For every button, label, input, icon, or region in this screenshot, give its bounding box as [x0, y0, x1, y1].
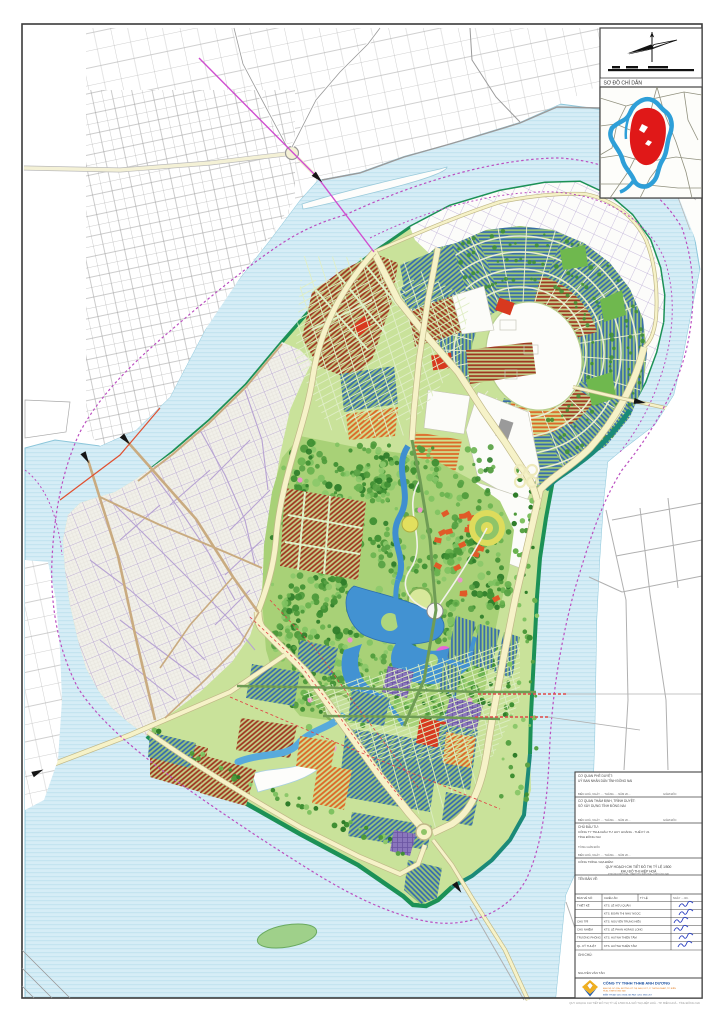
svg-text:QUY HOẠCH CHI TIẾT ĐÔ THỊ TỶ L: QUY HOẠCH CHI TIẾT ĐÔ THỊ TỶ LỆ 1/500 KH… — [569, 1000, 700, 1005]
svg-text:(PHƯỜNG HIỆP HOÀ - THÀNH PHỐ B: (PHƯỜNG HIỆP HOÀ - THÀNH PHỐ BIÊN HOÀ - … — [608, 873, 669, 876]
svg-text:HOÀ, TỈNH ĐỒNG NAI: HOÀ, TỈNH ĐỒNG NAI — [603, 990, 626, 993]
svg-text:ĐIỆN THOẠI: 0251 3946 266 F: ĐIỆN THOẠI: 0251 3946 266 FAX: 0251 3946… — [603, 994, 653, 997]
svg-text:BẢN VẼ SỐ:: BẢN VẼ SỐ: — [577, 895, 593, 900]
svg-text:KTS. LÊ PHAN HOÀNG LONG: KTS. LÊ PHAN HOÀNG LONG — [604, 927, 643, 932]
svg-text:QUY HOẠCH CHI TIẾT ĐÔ THỊ TỶ L: QUY HOẠCH CHI TIẾT ĐÔ THỊ TỶ LỆ 1/500 — [606, 864, 672, 869]
svg-text:TỶ LỆ: TỶ LỆ — [640, 895, 648, 900]
svg-text:CHỦ NHIỆM: CHỦ NHIỆM — [577, 927, 594, 932]
svg-text:CÔNG TY TNHH THHB ANH DƯƠNG: CÔNG TY TNHH THHB ANH DƯƠNG — [603, 981, 670, 986]
svg-text:KTS. NGUYỄN TRUNG HIẾU: KTS. NGUYỄN TRUNG HIẾU — [604, 919, 641, 924]
svg-text:CƠ QUAN PHÊ DUYỆT:: CƠ QUAN PHÊ DUYỆT: — [578, 773, 613, 778]
svg-text:ĐỊA CHỈ: SỐ 11A, ĐƯỜNG VÕ THỊ: ĐỊA CHỈ: SỐ 11A, ĐƯỜNG VÕ THỊ SÁU, KP.7,… — [603, 987, 676, 990]
svg-text:CÔNG TRÌNH / ĐỊA ĐIỂM:: CÔNG TRÌNH / ĐỊA ĐIỂM: — [578, 859, 614, 864]
svg-text:TÊN BẢN VẼ:: TÊN BẢN VẼ: — [578, 876, 598, 881]
svg-text:KTS. HUỲNH THIỆN TÂM: KTS. HUỲNH THIỆN TÂM — [604, 935, 637, 940]
svg-text:NGÀY ..../20..: NGÀY ..../20.. — [673, 896, 689, 900]
svg-text:THIẾT KẾ: THIẾT KẾ — [577, 903, 590, 908]
svg-text:CƠ QUAN THẨM ĐỊNH, TRÌNH DUYỆT: CƠ QUAN THẨM ĐỊNH, TRÌNH DUYỆT: — [578, 798, 635, 803]
svg-text:SƠ ĐỒ CHỈ DẪN: SƠ ĐỒ CHỈ DẪN — [604, 80, 643, 87]
svg-text:CÔNG TY TNHH ĐẦU TƯ HUY HOÀNG: CÔNG TY TNHH ĐẦU TƯ HUY HOÀNG - THẾ KỶ 2… — [578, 829, 650, 834]
svg-text:GHI CHÚ:: GHI CHÚ: — [578, 952, 592, 957]
svg-text:CHỦ TRÌ: CHỦ TRÌ — [577, 919, 589, 924]
svg-text:TỈNH ĐỒNG NAI: TỈNH ĐỒNG NAI — [578, 834, 601, 839]
svg-text:KTS. LÊ HỮU QUÂN: KTS. LÊ HỮU QUÂN — [604, 903, 630, 908]
svg-text:SỞ XÂY DỰNG TỈNH ĐỒNG NAI: SỞ XÂY DỰNG TỈNH ĐỒNG NAI — [578, 803, 626, 808]
svg-text:CHỦ ĐẦU TƯ:: CHỦ ĐẦU TƯ: — [578, 824, 599, 829]
svg-text:KTS. HUỲNH THIỆN TÂM: KTS. HUỲNH THIỆN TÂM — [604, 943, 637, 948]
svg-text:KTS. ĐOÀN THỊ NHƯ NGỌC: KTS. ĐOÀN THỊ NHƯ NGỌC — [604, 912, 641, 916]
svg-text:NGUYỄN VĂN TÂN: NGUYỄN VĂN TÂN — [578, 970, 605, 975]
svg-text:CHIỂU ẤN: CHIỂU ẤN — [604, 895, 617, 900]
svg-text:TRƯỞNG PHÒNG: TRƯỞNG PHÒNG — [577, 935, 601, 940]
svg-text:QL. KỸ THUẬT: QL. KỸ THUẬT — [577, 943, 596, 948]
svg-text:UỶ BAN NHÂN DÂN TỈNH ĐỒNG NAI: UỶ BAN NHÂN DÂN TỈNH ĐỒNG NAI — [578, 778, 632, 783]
